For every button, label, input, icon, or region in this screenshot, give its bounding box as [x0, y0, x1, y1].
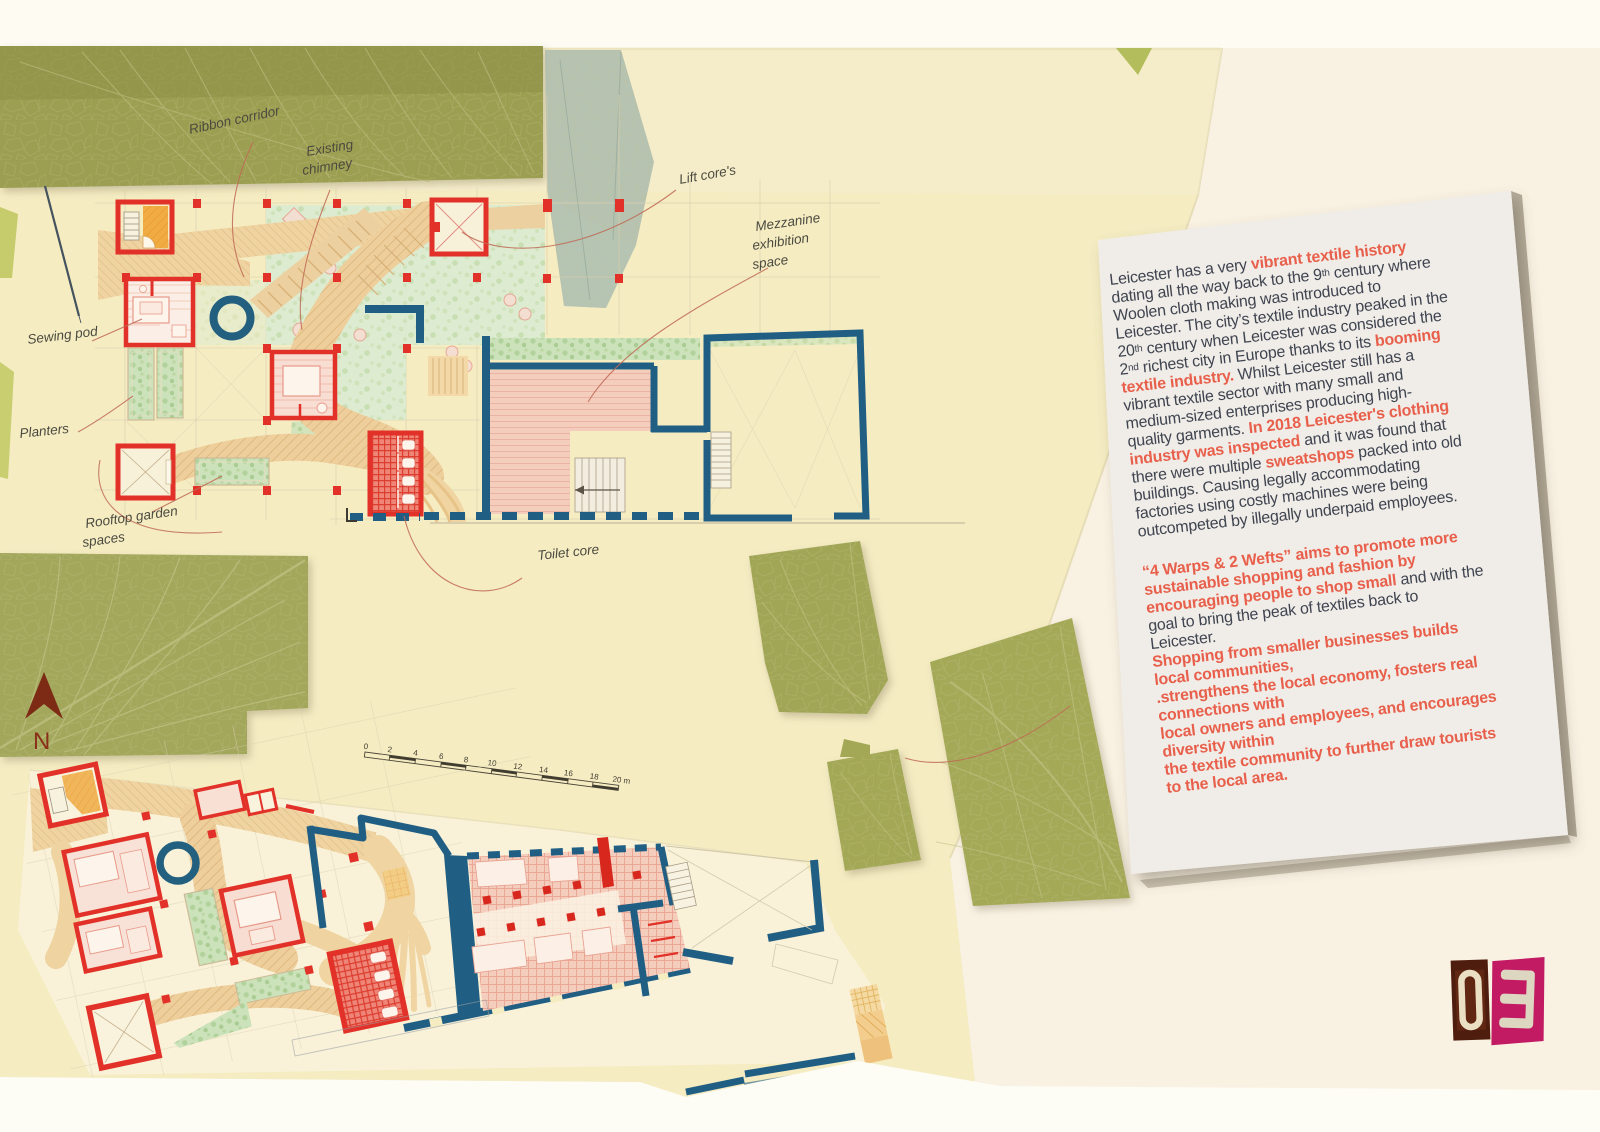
- svg-text:18: 18: [589, 772, 600, 782]
- svg-text:12: 12: [513, 762, 524, 772]
- svg-text:16: 16: [563, 768, 574, 778]
- svg-text:14: 14: [539, 765, 550, 775]
- svg-text:N: N: [33, 728, 50, 755]
- svg-text:10: 10: [487, 758, 498, 768]
